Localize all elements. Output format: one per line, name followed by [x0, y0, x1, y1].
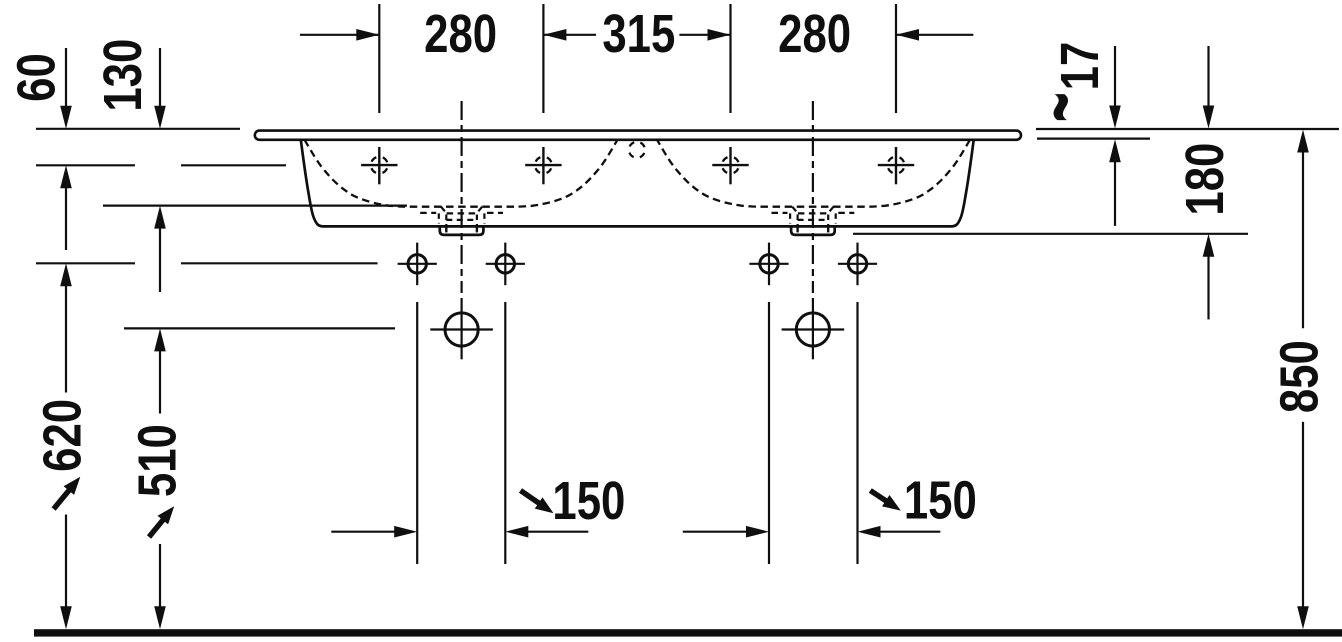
svg-text:~: ~: [1008, 92, 1110, 122]
svg-text:280: 280: [424, 5, 497, 64]
svg-text:620: 620: [33, 399, 92, 472]
svg-text:130: 130: [94, 39, 153, 112]
svg-text:850: 850: [1270, 340, 1329, 413]
svg-text:315: 315: [602, 5, 675, 64]
svg-text:60: 60: [7, 53, 66, 102]
svg-text:17: 17: [1051, 42, 1110, 91]
svg-text:280: 280: [778, 5, 851, 64]
svg-text:150: 150: [904, 471, 977, 530]
svg-text:510: 510: [128, 424, 187, 497]
svg-text:150: 150: [552, 472, 625, 531]
svg-text:180: 180: [1176, 143, 1235, 216]
